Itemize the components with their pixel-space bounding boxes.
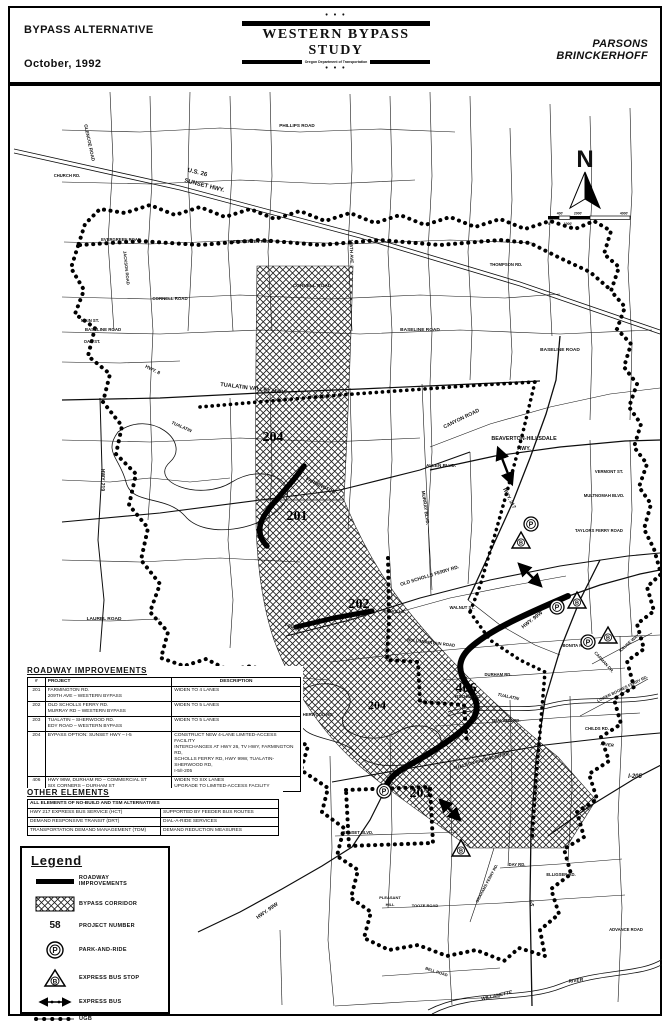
legend-item-express-bus: EXPRESS BUS [31, 997, 159, 1007]
road-label: SUNSET BLVD. [343, 830, 373, 835]
project-number: 201 [287, 509, 308, 524]
legend-label: PARK-AND-RIDE [79, 947, 127, 953]
road-label: LOWER BOONES FERRY RD. [596, 674, 648, 703]
ugb-swatch [33, 1015, 77, 1023]
cell-description: DEMAND REDUCTION MEASURES [161, 826, 279, 835]
bus-letter: B [53, 978, 58, 985]
road-label: CANYON ROAD [443, 408, 481, 431]
road-label: THOMPSON RD. [490, 262, 523, 267]
road-label: CHURCH RD. [54, 173, 81, 178]
cell-project: FARMINGTON RD. 209TH AVE – WESTERN BYPAS… [45, 686, 172, 701]
table-row: 204 BYPASS OPTION: SUNSET HWY – I-5 CONS… [28, 731, 301, 776]
road-label: 185TH AVE. [349, 239, 355, 264]
bus-letter: B [606, 636, 610, 642]
legend-label: EXPRESS BUS [79, 999, 121, 1005]
park-and-ride-icon: P [377, 784, 391, 798]
road-label: ADVANCE ROAD [609, 927, 643, 932]
express-bus-stop-swatch: B [43, 968, 67, 988]
road-label: BEAVERTON-HILLSDALE [491, 436, 557, 442]
other-header-row: ALL ELEMENTS OF NO-BUILD AND TSM ALTERNA… [28, 800, 279, 809]
road-label: BELL ROAD [425, 966, 449, 978]
river-label: RIVER [568, 977, 584, 985]
road-label: I-205 [628, 774, 642, 780]
cell-num: 202 [28, 701, 46, 716]
park-and-ride-icon: P [524, 517, 538, 531]
cell-element: DEMAND RESPONSIVE TRANSIT (DRT) [28, 817, 161, 826]
other-table-title: OTHER ELEMENTS [27, 788, 283, 797]
study-subtitle: Oregon Department of Transportation [305, 60, 368, 64]
title-bar-bottom: Oregon Department of Transportation [242, 60, 430, 64]
other-elements-panel: OTHER ELEMENTS ALL ELEMENTS OF NO-BUILD … [27, 788, 283, 836]
park-letter: P [52, 946, 58, 955]
road-label: MURRAY BLVD. [421, 490, 431, 525]
express-bus-swatch [33, 997, 77, 1007]
road-label: DURHAM RD. [485, 672, 512, 677]
road-label: LAUREL ROAD [87, 616, 122, 622]
header-left: BYPASS ALTERNATIVE October, 1992 [24, 24, 154, 70]
road-label: HWY. 8 [144, 364, 161, 377]
firm-line2: BRINCKERHOFF [556, 50, 648, 62]
road-label: EVERGREEN ROAD [101, 237, 141, 242]
bar-right [370, 60, 430, 64]
cell-description: WIDEN TO 4 LANES [172, 686, 301, 701]
map-sheet: BYPASS ALTERNATIVE October, 1992 • • • W… [0, 0, 670, 1024]
road-label: EVERGREEN ROAD [233, 239, 273, 244]
river-label: WILLAMETTE [481, 989, 514, 1002]
legend-item-corridor: BYPASS CORRIDOR [31, 896, 159, 912]
cell-num: 204 [28, 731, 46, 776]
road-label: OAK ST. [84, 339, 101, 344]
bypass-corridor [256, 266, 596, 848]
road-label: GRAHAMS FERRY RD. [474, 863, 499, 903]
bus-letter: B [575, 601, 579, 607]
header-band: BYPASS ALTERNATIVE October, 1992 • • • W… [8, 6, 662, 84]
park-letter: P [555, 605, 560, 612]
road-label: KRUSE WAY [618, 633, 640, 654]
park-letter: P [529, 522, 534, 529]
title-bar-top [242, 21, 430, 26]
express-bus-stop-icon: B [599, 627, 617, 643]
table-row: 201 FARMINGTON RD. 209TH AVE – WESTERN B… [28, 686, 301, 701]
cell-description: CONSTRUCT NEW 4-LANE LIMITED-ACCESS FACI… [172, 731, 301, 776]
sheet-date: October, 1992 [24, 58, 154, 70]
road-label: ELLIGSEN RD. [546, 872, 575, 877]
table-row: HWY 217 EXPRESS BUS SERVICE (HCT) SUPPOR… [28, 808, 279, 817]
scale-tick: 4000' [620, 212, 629, 216]
road-label: MULTNOMAH BLVD. [584, 493, 625, 498]
cell-project: BYPASS OPTION: SUNSET HWY – I-5 [45, 731, 172, 776]
express-bus-stop-icon: B [512, 532, 530, 548]
road-label: PHILLIPS ROAD [279, 123, 315, 128]
bypass-corridor-swatch [35, 896, 75, 912]
legend: Legend ROADWAY IMPROVEMENTS BYPASS CORRI… [20, 846, 170, 1014]
legend-item-express-bus-stop: B EXPRESS BUS STOP [31, 968, 159, 988]
road-label: BASELINE ROAD [540, 347, 580, 353]
legend-item-ugb: UGB [31, 1015, 159, 1023]
road-label: SUNSET HWY. [184, 178, 226, 194]
legend-label: BYPASS CORRIDOR [79, 901, 137, 907]
project-number: 204 [263, 430, 284, 445]
road-label: TOOZE ROAD [412, 903, 439, 908]
table-header-row: ALL ELEMENTS OF NO-BUILD AND TSM ALTERNA… [28, 800, 279, 809]
table-row: 202 OLD SCHOLLS FERRY RD. MURRAY RD – WE… [28, 701, 301, 716]
park-letter: P [382, 789, 387, 796]
project-number: 406 [456, 681, 477, 696]
table-row: DEMAND RESPONSIVE TRANSIT (DRT) DIAL-A-R… [28, 817, 279, 826]
river-label: RIVER [600, 741, 615, 748]
bus-letter: B [519, 541, 523, 547]
bar-left [242, 60, 302, 64]
north-arrow: N [570, 146, 600, 208]
title-dots-bottom: • • • [236, 65, 436, 73]
cell-element: HWY 217 EXPRESS BUS SERVICE (HCT) [28, 808, 161, 817]
legend-label: EXPRESS BUS STOP [79, 975, 139, 981]
study-title: WESTERN BYPASS STUDY [236, 27, 436, 59]
road-label: BASELINE ROAD [85, 327, 121, 332]
roadway-improvements-panel: ROADWAY IMPROVEMENTS # PROJECT DESCRIPTI… [27, 666, 303, 792]
road-label: HWY. 99W [255, 901, 279, 920]
cell-num: 203 [28, 716, 46, 731]
cell-project: OLD SCHOLLS FERRY RD. MURRAY RD – WESTER… [45, 701, 172, 716]
table-row: TRANSPORTATION DEMAND MANAGEMENT (TDM) D… [28, 826, 279, 835]
legend-title: Legend [31, 853, 159, 868]
cell-description: WIDEN TO 5 LANES [172, 701, 301, 716]
road-label: BASELINE ROAD [400, 327, 440, 333]
cell-description: WIDEN TO 5 LANES [172, 716, 301, 731]
cell-element: TRANSPORTATION DEMAND MANAGEMENT (TDM) [28, 826, 161, 835]
road-label: ALLEN BLVD. [426, 463, 456, 468]
firm-name: PARSONS BRINCKERHOFF [556, 38, 648, 62]
project-number: 203 [410, 786, 431, 801]
road-label: CORNELL ROAD [152, 296, 187, 301]
park-and-ride-icon: P [581, 635, 595, 649]
river-label: TUALATIN [171, 420, 194, 434]
roadway-table-title: ROADWAY IMPROVEMENTS [27, 666, 303, 675]
firm-line1: PARSONS [556, 38, 648, 50]
project-number: 202 [349, 597, 370, 612]
col-header-description: DESCRIPTION [172, 678, 301, 687]
road-label: SCHOLLS [384, 609, 404, 614]
legend-item-roadway: ROADWAY IMPROVEMENTS [31, 875, 159, 887]
legend-item-park-and-ride: P PARK-AND-RIDE [31, 940, 159, 960]
sheet-title: BYPASS ALTERNATIVE [24, 24, 154, 36]
road-label: I-5 [528, 900, 534, 907]
park-letter: P [586, 640, 591, 647]
road-label: GLENCOE ROAD [83, 124, 96, 162]
park-and-ride-swatch: P [45, 940, 65, 960]
north-label: N [576, 146, 593, 173]
study-title-block: • • • WESTERN BYPASS STUDY Oregon Depart… [236, 12, 436, 73]
road-label: DAY RD. [509, 862, 526, 867]
legend-item-project-number: 58 PROJECT NUMBER [31, 920, 159, 931]
road-label: TAYLORS FERRY ROAD [575, 528, 623, 533]
road-label: PLEASANT [379, 895, 401, 900]
scale-tick: 400' [557, 212, 564, 216]
road-label: HWY. [517, 446, 531, 452]
legend-label: PROJECT NUMBER [79, 923, 135, 929]
park-and-ride-icon: P [550, 600, 564, 614]
road-label: HWY. 219 [99, 469, 105, 491]
cell-description: SUPPORTED BY FEEDER BUS ROUTES [161, 808, 279, 817]
legend-label: ROADWAY IMPROVEMENTS [79, 875, 159, 887]
scale-tick: 2000' [574, 212, 583, 216]
cell-project: TUALATIN – SHERWOOD RD. EDY ROAD – WESTE… [45, 716, 172, 731]
road-label: VERMONT ST. [595, 469, 623, 474]
other-elements-table: ALL ELEMENTS OF NO-BUILD AND TSM ALTERNA… [27, 799, 279, 836]
road-label: WALNUT ST. [449, 605, 474, 610]
road-label: JACKSON ROAD [122, 251, 131, 285]
roadway-improvement-swatch [36, 879, 74, 884]
table-header-row: # PROJECT DESCRIPTION [28, 678, 301, 687]
road-label: U.S. 26 [187, 168, 209, 179]
road-label: CORNELL ROAD [293, 283, 332, 289]
project-number: 204 [368, 698, 386, 712]
river-label: TUALATIN [497, 692, 520, 702]
title-dots-top: • • • [236, 12, 436, 20]
scale-tick: 0 [548, 222, 550, 226]
cell-description: DIAL-A-RIDE SERVICES [161, 817, 279, 826]
road-label: TUALATIN RD. [492, 718, 521, 723]
road-label: HILL [386, 902, 395, 907]
table-row: 203 TUALATIN – SHERWOOD RD. EDY ROAD – W… [28, 716, 301, 731]
roadway-improvements-table: # PROJECT DESCRIPTION 201 FARMINGTON RD.… [27, 677, 301, 792]
col-header-project: PROJECT [45, 678, 172, 687]
cell-num: 201 [28, 686, 46, 701]
col-header-num: # [28, 678, 46, 687]
road-label: MAIN ST. [81, 318, 99, 323]
road-label: CHILDS RD. [585, 726, 609, 731]
legend-label: UGB [79, 1016, 92, 1022]
bus-letter: B [459, 849, 463, 855]
project-number-swatch: 58 [49, 920, 60, 931]
scale-tick: 1000' [564, 222, 573, 226]
